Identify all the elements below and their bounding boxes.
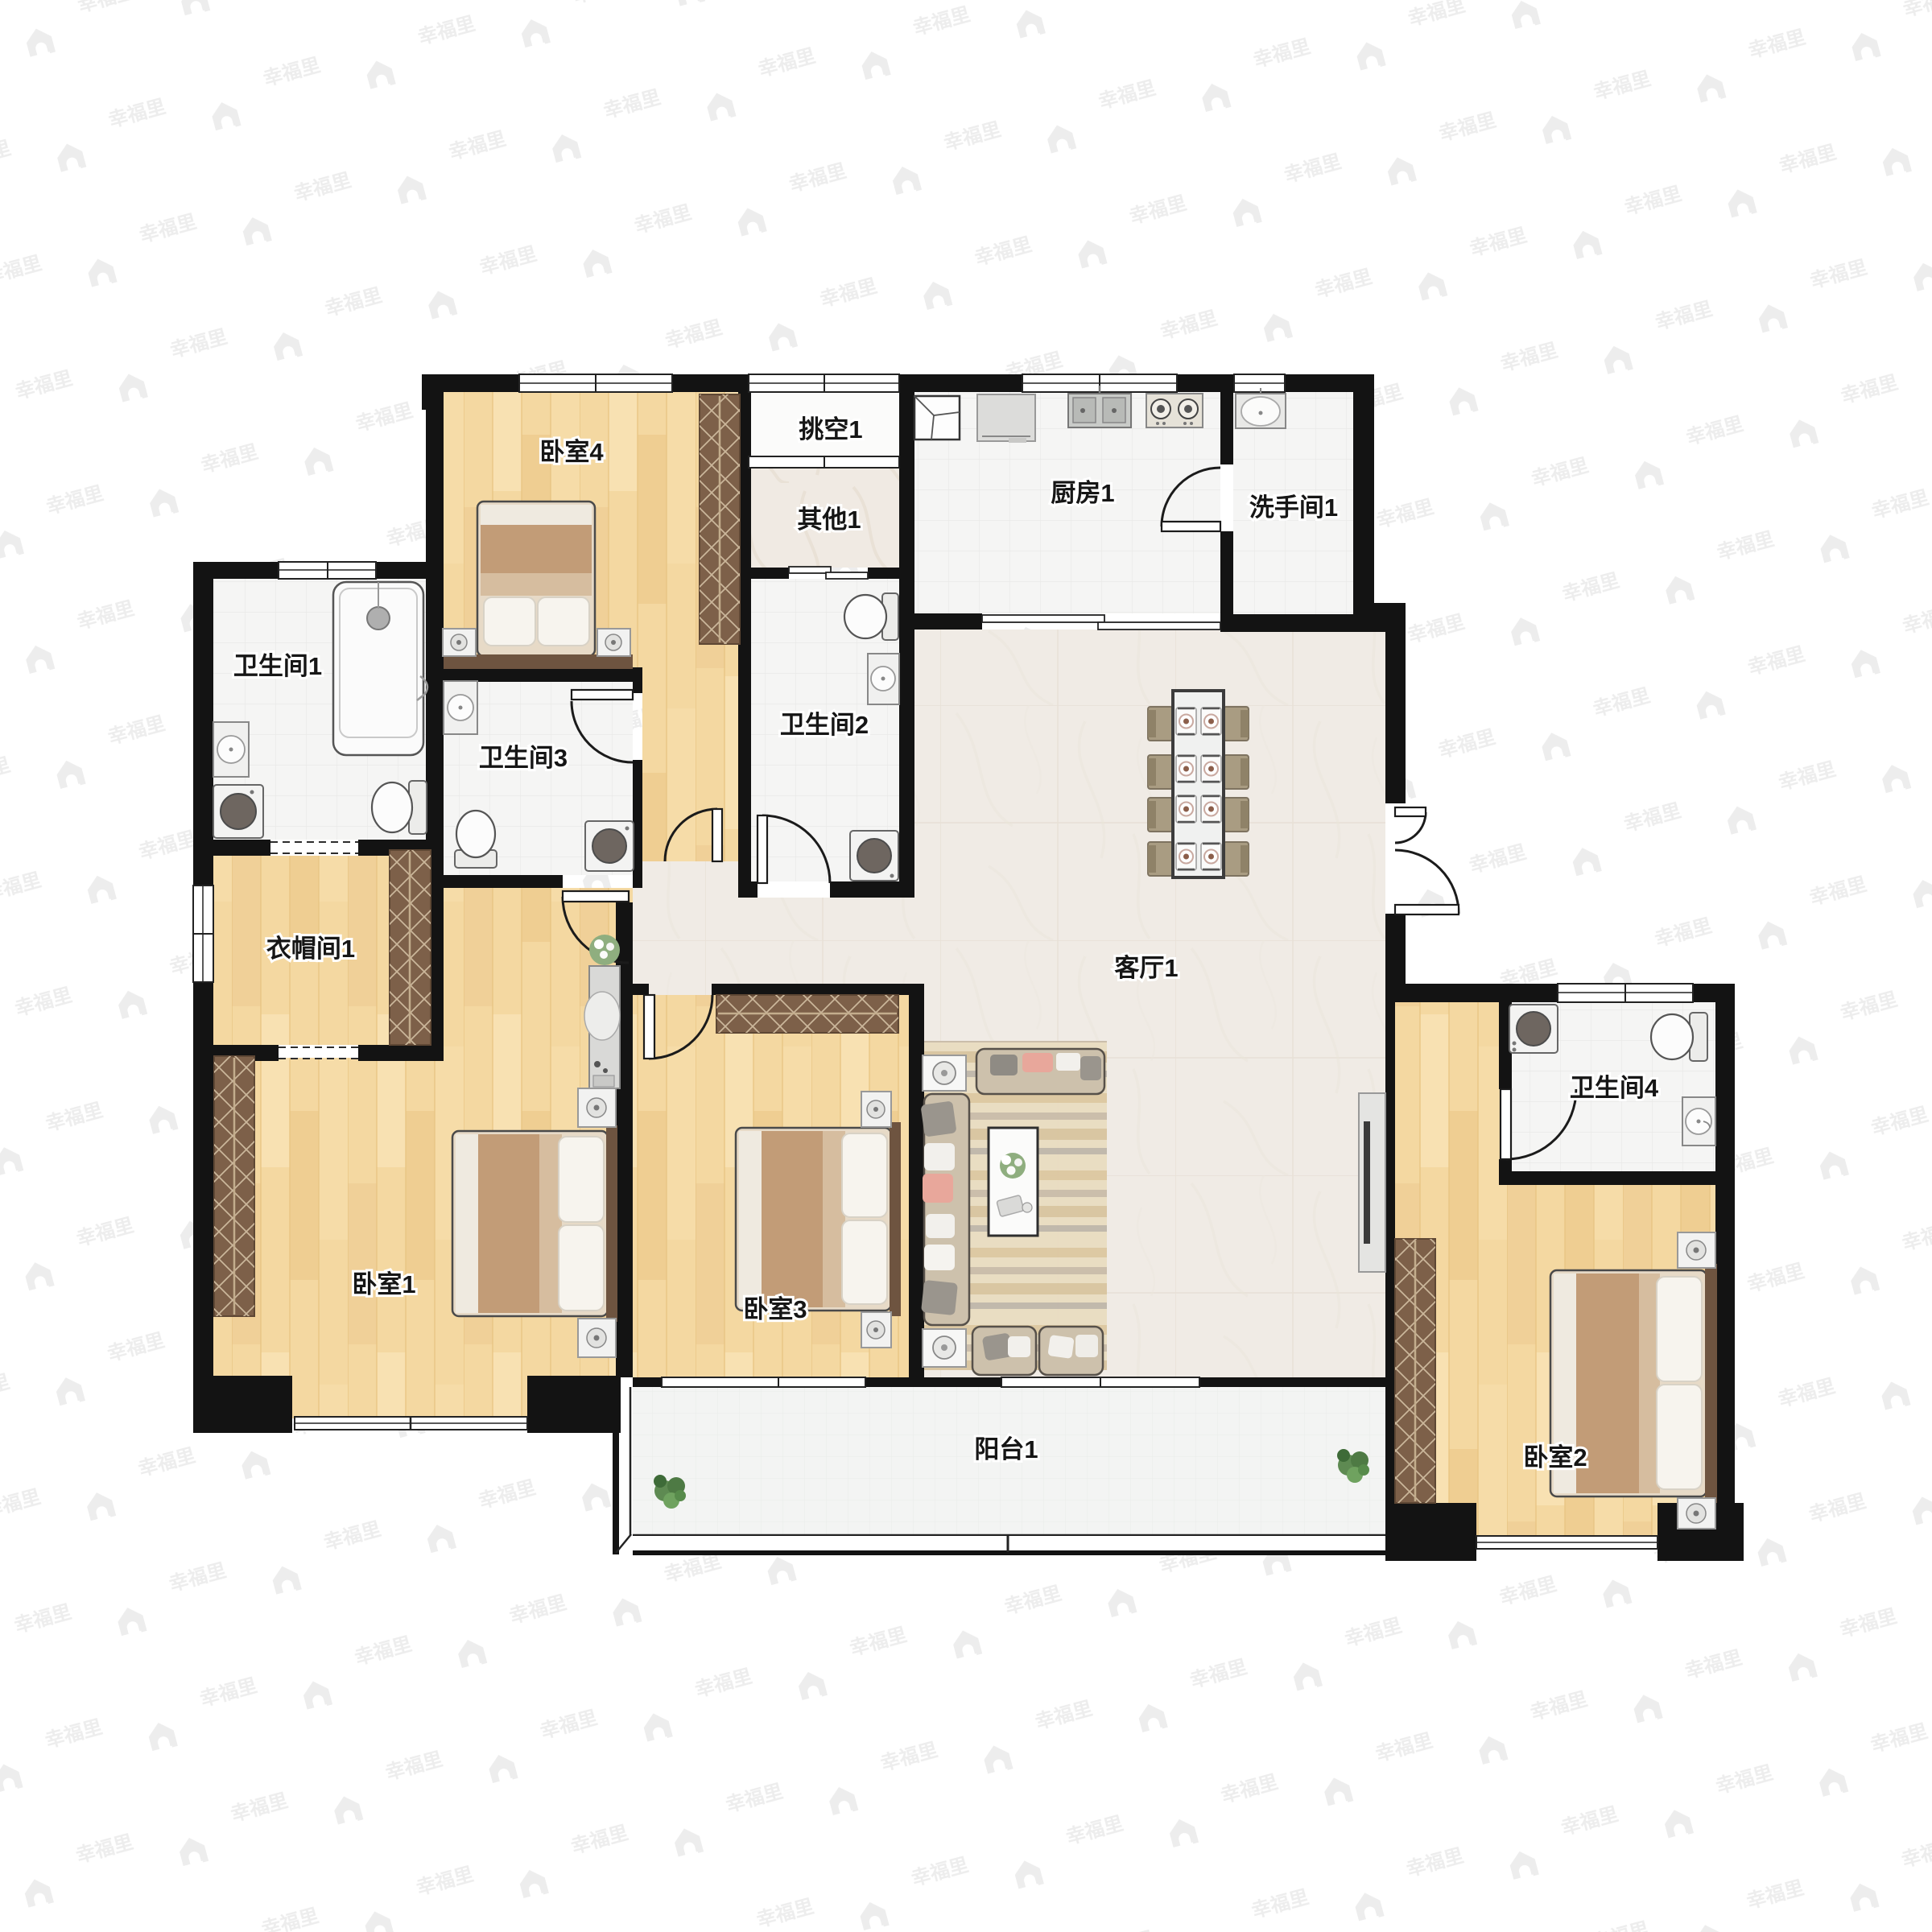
svg-text:阳台1: 阳台1 <box>974 1435 1038 1463</box>
svg-text:客厅1: 客厅1 <box>1114 954 1178 982</box>
svg-text:卫生间3: 卫生间3 <box>479 744 568 772</box>
svg-text:卧室4: 卧室4 <box>539 438 604 466</box>
svg-text:卧室1: 卧室1 <box>352 1270 415 1298</box>
svg-text:卫生间1: 卫生间1 <box>233 652 322 680</box>
svg-text:洗手间1: 洗手间1 <box>1249 493 1338 522</box>
svg-text:卫生间2: 卫生间2 <box>780 711 869 739</box>
svg-text:厨房1: 厨房1 <box>1051 479 1114 507</box>
svg-text:卫生间4: 卫生间4 <box>1570 1074 1659 1102</box>
svg-text:卧室2: 卧室2 <box>1523 1443 1587 1472</box>
svg-text:挑空1: 挑空1 <box>799 415 862 444</box>
svg-text:其他1: 其他1 <box>797 506 861 534</box>
svg-text:衣帽间1: 衣帽间1 <box>266 935 355 963</box>
svg-text:卧室3: 卧室3 <box>743 1295 807 1323</box>
